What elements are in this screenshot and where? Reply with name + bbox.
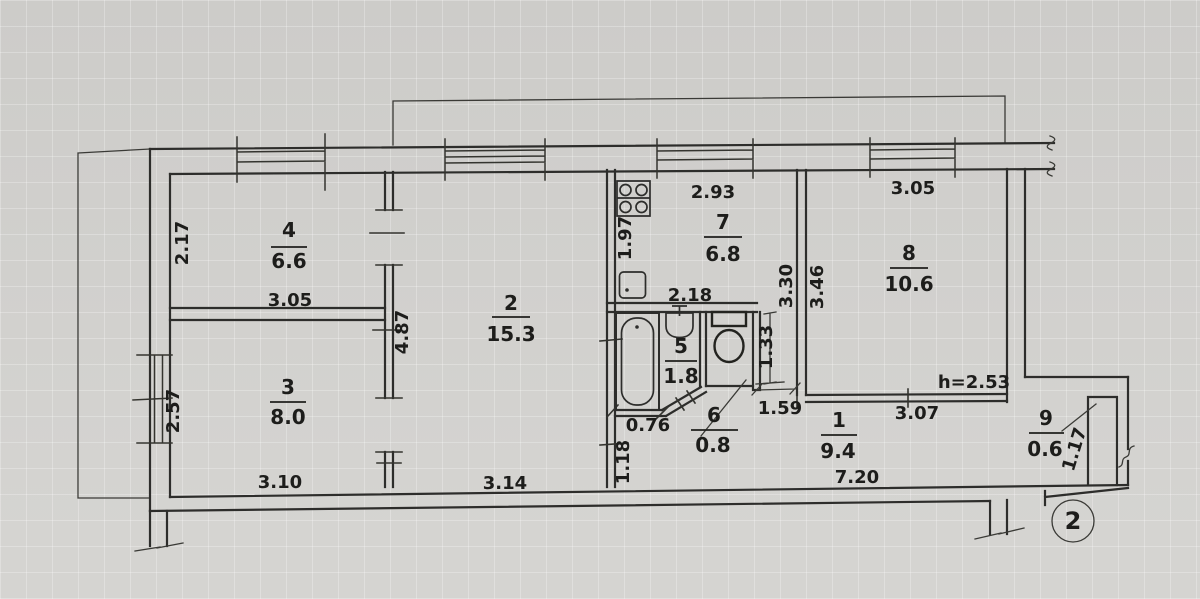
dim-bath-width: 0.76	[626, 415, 670, 436]
balcony-outline	[393, 96, 1005, 145]
dim-bath-wall: 1.18	[613, 440, 634, 484]
room8-number: 8	[902, 241, 916, 265]
room7-area: 6.8	[705, 242, 740, 266]
room1-area: 9.4	[820, 439, 855, 463]
washbasin-icon	[666, 306, 693, 338]
dim-wc-depth: 1.33	[756, 325, 777, 369]
room7-number: 7	[716, 210, 730, 234]
dim-wc-opening: 1.59	[758, 398, 802, 419]
room2-number: 2	[504, 291, 518, 315]
floor-plan-drawing: 4 6.6 3 8.0 2 15.3 7 6.8 8 10.6 5 1.8 6 …	[0, 0, 1200, 599]
windows	[133, 134, 955, 443]
dim-room4-width: 3.05	[268, 290, 312, 311]
dim-room8-depth: 3.46	[807, 265, 828, 309]
room6-area: 0.8	[695, 433, 730, 457]
room6-number: 6	[707, 403, 721, 427]
dim-hall-top: 3.07	[895, 403, 939, 424]
dim-room3-depth: 2.57	[163, 389, 184, 433]
dim-room2-depth: 4.87	[392, 310, 413, 354]
dim-room7-depth: 1.97	[615, 216, 636, 260]
outer-boundary	[78, 149, 150, 498]
ceiling-height-note: h=2.53	[938, 372, 1010, 393]
room5-area: 1.8	[663, 364, 698, 388]
room8-area: 10.6	[884, 272, 933, 296]
dim-room8-width: 3.05	[891, 178, 935, 199]
dim-room7-width: 2.93	[691, 182, 735, 203]
room4-number: 4	[282, 218, 296, 242]
dim-room7-inner: 2.18	[668, 285, 712, 306]
room2-area: 15.3	[486, 322, 535, 346]
room9-area: 0.6	[1027, 437, 1062, 461]
dim-room3-width: 3.10	[258, 472, 302, 493]
bathtub-icon	[616, 313, 659, 410]
dim-room2-width: 3.14	[483, 473, 527, 494]
room5-number: 5	[674, 334, 688, 358]
room3-number: 3	[281, 375, 295, 399]
sheet-number: 2	[1065, 507, 1082, 535]
room4-area: 6.6	[271, 249, 306, 273]
sheet-number-badge: 2	[1052, 500, 1094, 542]
dimension-labels: 3.05 2.17 3.10 2.57 3.14 4.87 2.93 1.97 …	[163, 178, 1091, 494]
stove-icon	[617, 181, 650, 216]
dim-room4-depth: 2.17	[172, 221, 193, 265]
dim-hall-wall: 3.30	[776, 264, 797, 308]
room3-area: 8.0	[270, 405, 305, 429]
dim-hall-width: 7.20	[835, 467, 879, 488]
floor-plan-sheet: 4 6.6 3 8.0 2 15.3 7 6.8 8 10.6 5 1.8 6 …	[0, 0, 1200, 599]
room1-number: 1	[832, 408, 846, 432]
toilet-icon	[712, 312, 746, 362]
room9-number: 9	[1039, 406, 1053, 430]
kitchen-sink-icon	[620, 272, 646, 298]
room-label-underlines	[270, 237, 1064, 435]
interior-walls	[170, 170, 1117, 487]
